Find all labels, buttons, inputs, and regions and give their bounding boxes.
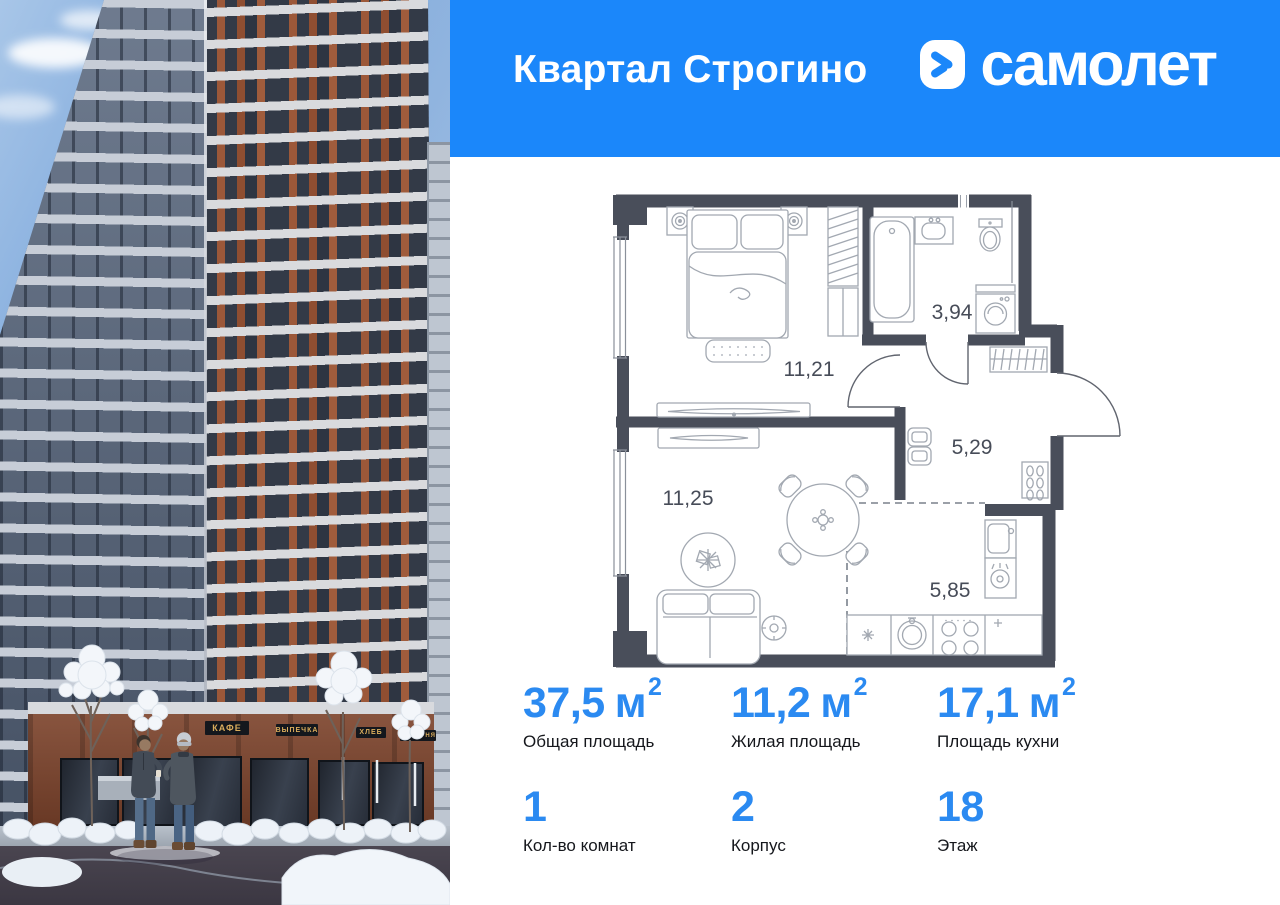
wall-corner <box>613 631 647 667</box>
bathtub <box>870 217 914 322</box>
kitchen-counter <box>847 615 1042 655</box>
shoe-cabinet <box>1022 462 1048 500</box>
stat-value: 17,1м2 <box>937 682 1167 725</box>
stat-label: Кол-во комнат <box>523 836 753 856</box>
floor-plan: 11,21 3,94 5,29 11,25 5,85 <box>610 190 1130 670</box>
street-scene <box>0 0 450 905</box>
stat-label: Площадь кухни <box>937 732 1167 752</box>
stat-total-area: 37,5м2 Общая площадь <box>523 682 753 752</box>
kitchen-sink-cabinet <box>985 520 1016 558</box>
stat-value: 1 <box>523 786 753 829</box>
person-right <box>166 732 196 850</box>
plant <box>681 533 735 587</box>
stat-floor: 18 Этаж <box>937 786 1167 856</box>
samolet-icon <box>920 40 965 89</box>
stat-kitchen-area: 17,1м2 Площадь кухни <box>937 682 1167 752</box>
bollards <box>343 757 415 806</box>
toilet <box>979 219 1002 251</box>
project-title: Квартал Строгино <box>513 50 867 89</box>
stat-value: 18 <box>937 786 1167 829</box>
tv-console-bedroom <box>657 403 810 417</box>
bathroom-area-label: 3,94 <box>932 301 973 324</box>
wardrobe <box>828 207 858 336</box>
kitchen-area-label: 5,85 <box>930 579 971 602</box>
stat-label: Корпус <box>731 836 961 856</box>
stat-label: Этаж <box>937 836 1167 856</box>
hallway-area-label: 5,29 <box>952 436 993 459</box>
bed <box>687 210 788 338</box>
stat-label: Жилая площадь <box>731 732 961 752</box>
radiator <box>908 428 931 465</box>
stat-rooms: 1 Кол-во комнат <box>523 786 753 856</box>
wall-corner <box>613 195 647 225</box>
building-photo: КАФЕ ВЫПЕЧКА ХЛЕБ ПЕКАРНЯ <box>0 0 450 905</box>
sofa <box>657 590 760 664</box>
snowy-bushes <box>3 818 446 845</box>
people-shadow <box>117 849 213 865</box>
hall-closet <box>990 347 1047 372</box>
bathroom-sink <box>915 217 953 244</box>
stat-building: 2 Корпус <box>731 786 961 856</box>
dining-table <box>777 473 871 568</box>
stat-value: 2 <box>731 786 961 829</box>
living-area-label: 11,25 <box>663 487 714 510</box>
bed-bench <box>706 340 770 362</box>
floor-lamp <box>762 616 786 640</box>
brand-name: самолет <box>980 40 1216 89</box>
bath-shelf <box>976 285 1015 292</box>
listing-card: КАФЕ ВЫПЕЧКА ХЛЕБ ПЕКАРНЯ <box>0 0 1280 905</box>
stat-label: Общая площадь <box>523 732 753 752</box>
stat-living-area: 11,2м2 Жилая площадь <box>731 682 961 752</box>
stat-value: 11,2м2 <box>731 682 961 725</box>
bedroom-area-label: 11,21 <box>784 358 835 381</box>
dishwasher <box>985 558 1016 598</box>
snowy-trees <box>59 645 430 832</box>
wall-niche <box>958 195 969 208</box>
stat-value: 37,5м2 <box>523 682 753 725</box>
washing-machine <box>976 294 1015 333</box>
brand-logo: самолет <box>920 40 1216 89</box>
console-living <box>658 428 759 448</box>
